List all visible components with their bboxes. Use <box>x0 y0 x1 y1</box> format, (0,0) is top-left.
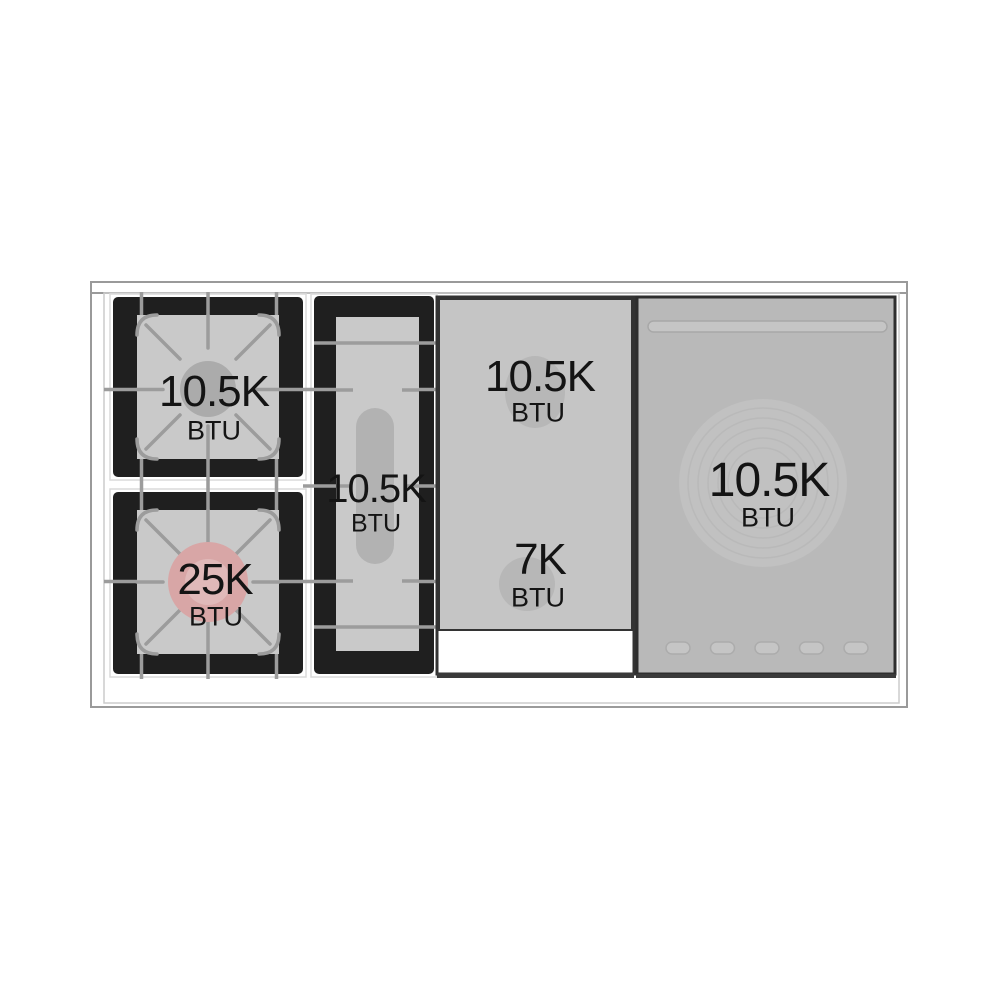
left-rear-burner-power-label: 10.5K <box>159 370 269 414</box>
left-front-burner-unit-label: BTU <box>189 604 243 631</box>
left-front-burner-power-label: 25K <box>177 558 252 602</box>
center-oval-burner-unit-label: BTU <box>351 512 401 537</box>
cooktop-artwork <box>0 0 1000 1000</box>
left-rear-burner-unit-label: BTU <box>187 418 241 445</box>
center-oval-burner-power-label: 10.5K <box>326 469 426 509</box>
cooktop-diagram: 10.5K BTU 25K BTU 10.5K BTU 10.5K BTU 7K… <box>0 0 1000 1000</box>
griddle-front-burner-power-label: 7K <box>514 538 566 582</box>
right-plate-burner-power-label: 10.5K <box>709 457 829 505</box>
griddle-front-burner-unit-label: BTU <box>511 585 565 612</box>
handle-bar <box>648 321 887 332</box>
griddle-rear-burner-unit-label: BTU <box>511 400 565 427</box>
right-plate-burner-unit-label: BTU <box>741 505 795 532</box>
griddle-rear-burner-power-label: 10.5K <box>485 355 595 399</box>
